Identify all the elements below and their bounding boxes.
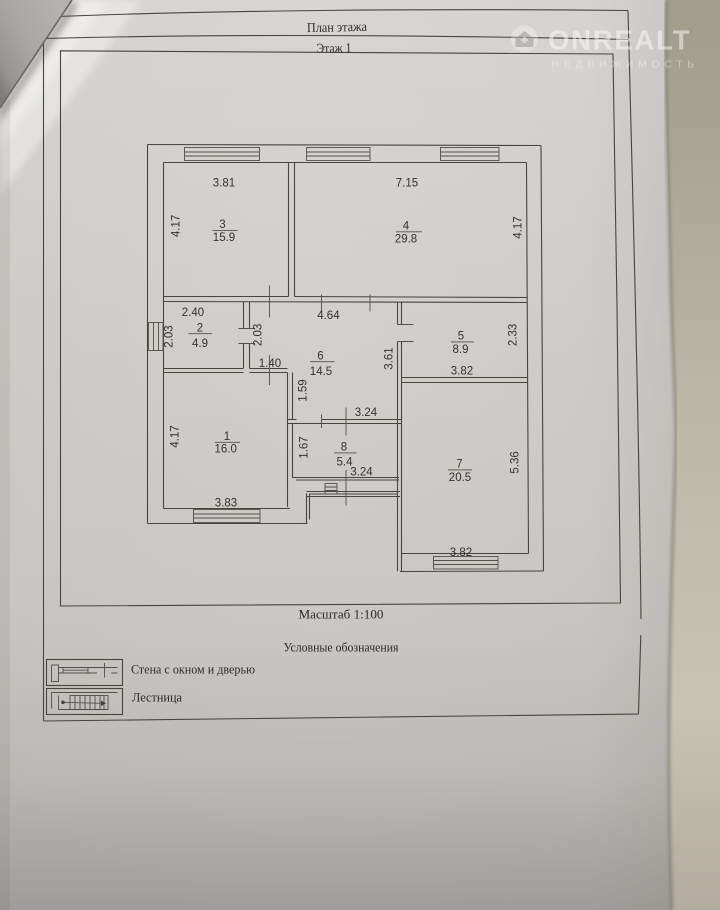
svg-text:ONREALT: ONREALT bbox=[548, 25, 690, 56]
svg-text:3: 3 bbox=[219, 219, 225, 231]
svg-text:5: 5 bbox=[458, 331, 464, 343]
svg-text:3.24: 3.24 bbox=[350, 466, 373, 478]
svg-text:Этаж 1: Этаж 1 bbox=[316, 40, 351, 56]
svg-text:29.8: 29.8 bbox=[395, 234, 417, 246]
svg-text:3.83: 3.83 bbox=[215, 497, 237, 509]
svg-text:4.17: 4.17 bbox=[513, 216, 525, 238]
svg-text:6: 6 bbox=[317, 351, 323, 363]
svg-text:4.17: 4.17 bbox=[170, 425, 182, 447]
svg-text:8: 8 bbox=[341, 442, 347, 454]
svg-text:Лестница: Лестница bbox=[132, 690, 182, 705]
svg-text:2.03: 2.03 bbox=[253, 324, 265, 346]
svg-text:4: 4 bbox=[403, 221, 410, 233]
svg-text:4.64: 4.64 bbox=[317, 310, 340, 322]
svg-text:7.15: 7.15 bbox=[396, 177, 418, 189]
svg-text:3.82: 3.82 bbox=[450, 547, 472, 559]
svg-text:1.67: 1.67 bbox=[299, 436, 311, 458]
svg-text:7: 7 bbox=[456, 459, 462, 471]
svg-text:2: 2 bbox=[197, 323, 203, 335]
svg-text:2.40: 2.40 bbox=[182, 307, 204, 319]
svg-text:1.40: 1.40 bbox=[259, 358, 281, 370]
svg-text:Масштаб 1:100: Масштаб 1:100 bbox=[299, 607, 384, 622]
svg-text:16.0: 16.0 bbox=[215, 443, 237, 455]
svg-text:15.9: 15.9 bbox=[213, 232, 235, 244]
svg-text:1: 1 bbox=[224, 431, 230, 443]
svg-text:2.33: 2.33 bbox=[508, 324, 520, 346]
svg-text:4.17: 4.17 bbox=[170, 215, 182, 237]
svg-text:1.59: 1.59 bbox=[298, 379, 310, 401]
svg-text:3.82: 3.82 bbox=[451, 366, 473, 378]
svg-text:3.24: 3.24 bbox=[355, 407, 378, 419]
svg-text:2.03: 2.03 bbox=[164, 325, 176, 347]
svg-text:14.5: 14.5 bbox=[310, 366, 332, 378]
svg-text:3.61: 3.61 bbox=[384, 347, 396, 369]
svg-text:Условные обозначения: Условные обозначения bbox=[284, 641, 399, 655]
svg-text:План этажа: План этажа bbox=[307, 19, 367, 35]
svg-text:3.81: 3.81 bbox=[213, 177, 235, 189]
svg-text:4.9: 4.9 bbox=[192, 338, 208, 350]
svg-text:5.36: 5.36 bbox=[510, 451, 522, 473]
svg-text:Стена с окном и дверью: Стена с окном и дверью bbox=[131, 662, 255, 677]
svg-text:8.9: 8.9 bbox=[453, 344, 469, 356]
svg-text:20.5: 20.5 bbox=[449, 472, 471, 484]
